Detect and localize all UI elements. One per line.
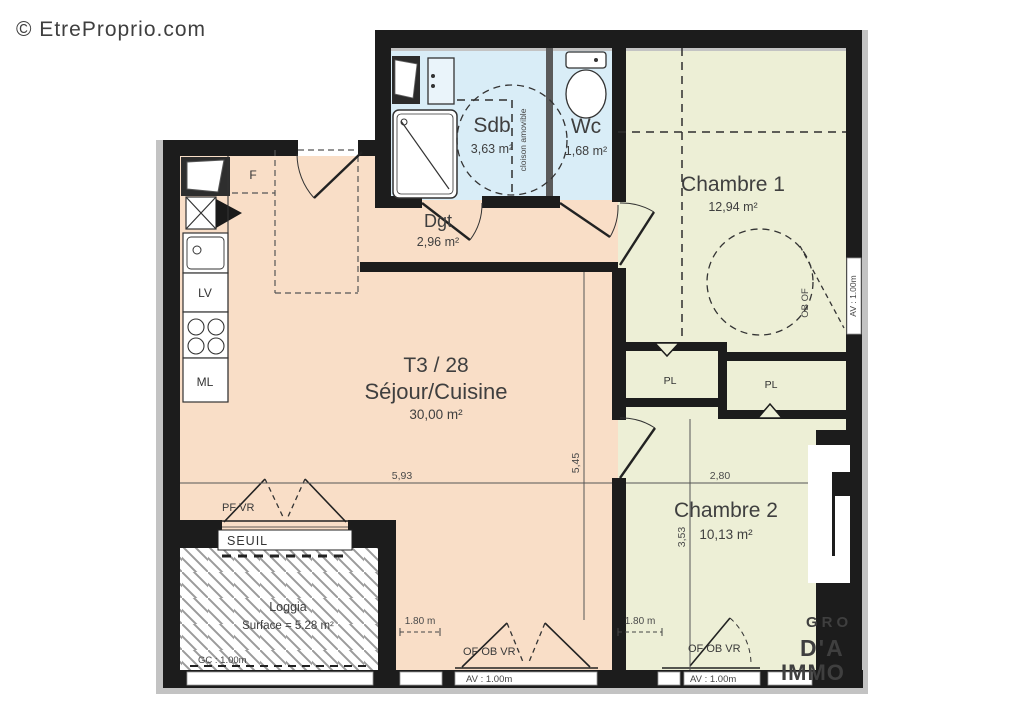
cloison-label: cloison amovible xyxy=(518,108,528,171)
dim-chambre2-h: 3,53 xyxy=(676,527,688,548)
toilet-tank xyxy=(566,52,606,68)
floor-plan-canvas: Sdb 3,63 m² Wc 1,68 m² Chambre 1 12,94 m… xyxy=(0,0,1020,720)
wc-area: 1,68 m² xyxy=(565,144,607,158)
dim-win-sejour: 1.80 m xyxy=(405,616,436,627)
wall-chambre-a xyxy=(612,30,626,202)
dim-sejour-w: 5,93 xyxy=(392,470,413,482)
chambre2-name: Chambre 2 xyxy=(674,499,778,522)
agency-line2: D'A xyxy=(800,635,845,661)
chambre1-name: Chambre 1 xyxy=(681,173,785,196)
site-watermark: © EtreProprio.com xyxy=(16,18,206,41)
loggia-railing xyxy=(187,672,373,685)
av-chambre2: AV : 1.00m xyxy=(690,674,736,685)
loggia-name: Loggia xyxy=(269,600,307,614)
wall-sdb-bottom-b xyxy=(482,196,560,208)
dishwasher-label: LV xyxy=(198,286,212,300)
washer-label: ML xyxy=(197,375,214,389)
dim-win-chambre2: 1.80 m xyxy=(625,616,656,627)
wall-sdb-left xyxy=(375,30,391,202)
wall-dgt-bottom xyxy=(360,262,618,272)
loggia-area: Surface = 5.28 m² xyxy=(242,620,334,632)
dim-chambre2-w: 2,80 xyxy=(710,470,731,482)
wall-pl-bottom-left xyxy=(618,398,726,407)
kitchen-sink-unit xyxy=(183,233,228,273)
seuil-label: SEUIL xyxy=(227,534,268,548)
unit-label: T3 / 28 xyxy=(403,354,468,377)
cabinet-knob xyxy=(431,74,435,78)
ob-of-label: OB OF xyxy=(800,288,811,318)
wall-pl-mid xyxy=(718,342,727,419)
wall-right xyxy=(846,30,862,688)
agency-line3: IMMO xyxy=(781,660,845,685)
wall-pl-top-right xyxy=(718,352,846,361)
sdb-name: Sdb xyxy=(473,114,510,137)
sejour-name: Séjour/Cuisine xyxy=(364,379,507,404)
gc-label: GC : 1.00m xyxy=(198,655,247,666)
sejour-area: 30,00 m² xyxy=(409,407,463,422)
wall-loggia-right xyxy=(378,548,396,688)
floor-plan-svg: Sdb 3,63 m² Wc 1,68 m² Chambre 1 12,94 m… xyxy=(0,0,1020,720)
washbasin-top xyxy=(395,60,417,98)
av-chambre1: AV : 1.00m xyxy=(848,275,858,316)
wall-kitchen-top xyxy=(163,140,298,156)
dgt-name: Dgt xyxy=(424,211,452,231)
fridge-label: F xyxy=(249,168,256,182)
of-ob-vr-sejour: OF OB VR xyxy=(463,646,516,658)
wall-loggia-window-right xyxy=(348,520,396,548)
toilet-button xyxy=(594,58,598,62)
sdb-area: 3,63 m² xyxy=(471,142,513,156)
agency-line1: GRO xyxy=(806,614,852,631)
wc-name: Wc xyxy=(571,115,601,138)
dim-sejour-h: 5,45 xyxy=(570,453,582,474)
av-sejour: AV : 1.00m xyxy=(466,674,512,685)
chambre2-area: 10,13 m² xyxy=(699,527,753,542)
toilet-bowl xyxy=(566,70,606,118)
pf-vr-label: PF VR xyxy=(222,502,254,514)
closet-left-label: PL xyxy=(664,375,677,387)
wall-chambre-c xyxy=(612,478,626,672)
kitchen-corner-door xyxy=(187,160,224,192)
of-ob-vr-chambre2: OF OB VR xyxy=(688,643,741,655)
dgt-area: 2,96 m² xyxy=(417,235,459,249)
removable-partition xyxy=(546,48,553,196)
wall-left xyxy=(163,140,180,688)
chambre1-area: 12,94 m² xyxy=(708,200,757,214)
entry-threshold xyxy=(298,140,358,156)
agency-logo-inner xyxy=(835,496,850,556)
cabinet-knob xyxy=(431,84,435,88)
closet-right-label: PL xyxy=(765,379,778,391)
bath-cabinet xyxy=(428,58,454,104)
wall-loggia-window-left xyxy=(163,520,222,548)
